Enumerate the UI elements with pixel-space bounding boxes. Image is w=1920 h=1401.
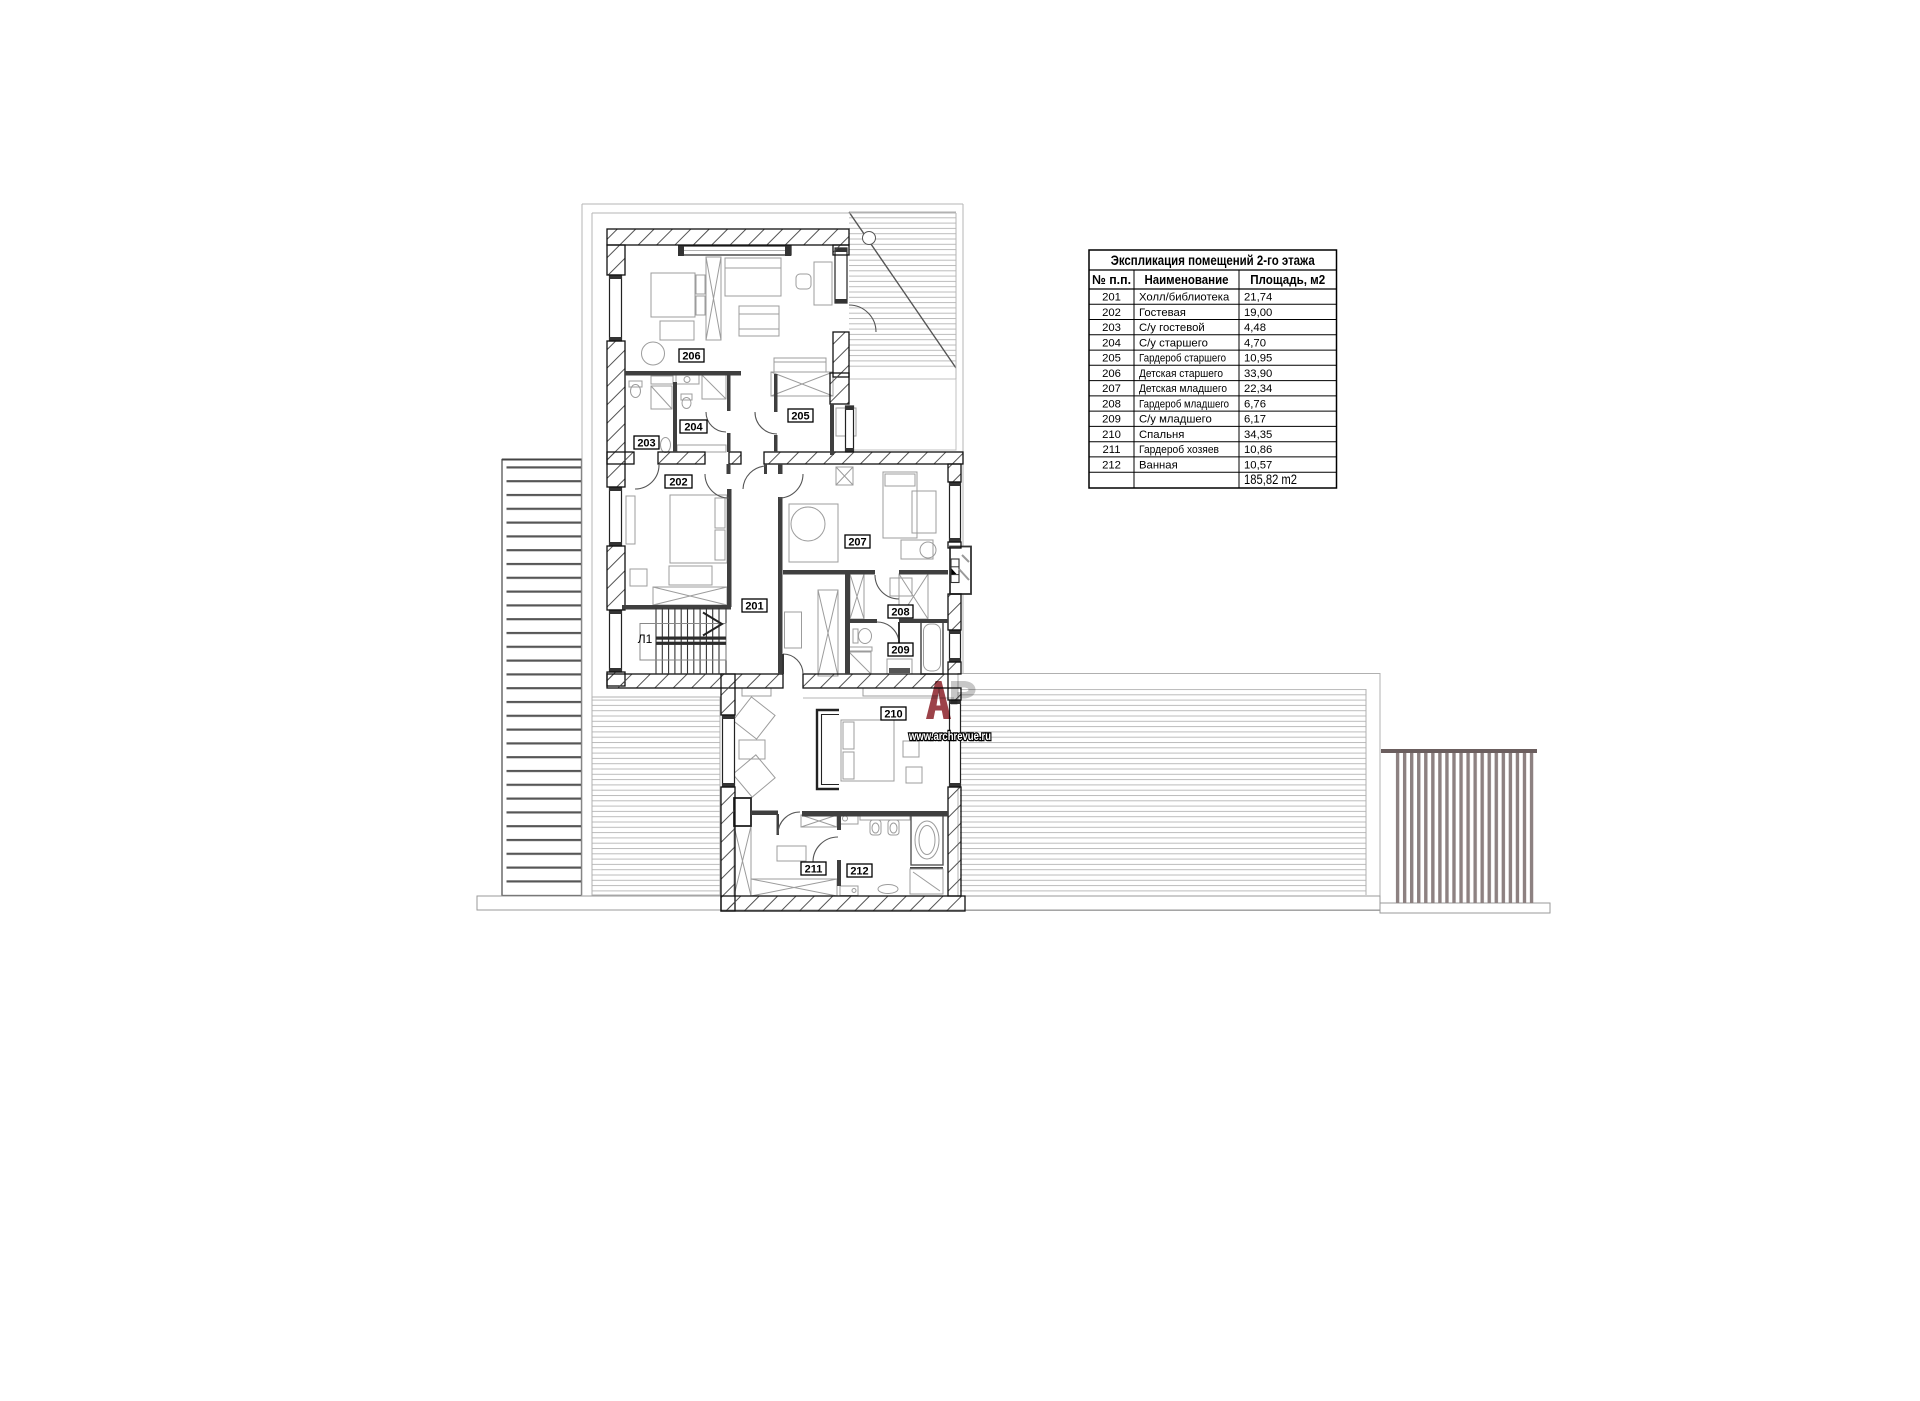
- svg-text:33,90: 33,90: [1244, 368, 1272, 380]
- svg-text:205: 205: [791, 411, 809, 423]
- svg-text:202: 202: [669, 477, 687, 489]
- svg-text:211: 211: [1102, 444, 1120, 456]
- svg-text:203: 203: [637, 438, 655, 450]
- svg-text:21,74: 21,74: [1244, 292, 1272, 304]
- svg-text:208: 208: [891, 607, 909, 619]
- svg-text:202: 202: [1102, 307, 1121, 319]
- svg-text:10,57: 10,57: [1244, 459, 1272, 471]
- svg-text:Ванная: Ванная: [1139, 459, 1178, 471]
- svg-text:6,76: 6,76: [1244, 398, 1266, 410]
- svg-text:Экспликация помещений 2-го эта: Экспликация помещений 2-го этажа: [1111, 252, 1315, 268]
- svg-text:19,00: 19,00: [1244, 307, 1272, 319]
- svg-text:Холл/библиотека: Холл/библиотека: [1139, 292, 1230, 304]
- svg-text:185,82 m2: 185,82 m2: [1244, 472, 1297, 487]
- svg-text:205: 205: [1102, 353, 1121, 365]
- svg-text:207: 207: [1102, 383, 1121, 395]
- svg-text:10,86: 10,86: [1244, 444, 1272, 456]
- svg-text:Детская младшего: Детская младшего: [1139, 383, 1227, 395]
- svg-text:34,35: 34,35: [1244, 429, 1272, 441]
- svg-text:206: 206: [1102, 368, 1121, 380]
- svg-text:С/у младшего: С/у младшего: [1139, 414, 1212, 426]
- svg-text:10,95: 10,95: [1244, 353, 1272, 365]
- svg-text:201: 201: [1102, 292, 1121, 304]
- svg-text:Наименование: Наименование: [1145, 272, 1229, 287]
- svg-text:212: 212: [850, 866, 868, 878]
- svg-text:С/у старшего: С/у старшего: [1139, 337, 1208, 349]
- svg-text:210: 210: [884, 709, 902, 721]
- svg-text:204: 204: [684, 422, 703, 434]
- svg-text:209: 209: [1102, 414, 1121, 426]
- svg-text:204: 204: [1102, 337, 1121, 349]
- svg-text:203: 203: [1102, 322, 1121, 334]
- svg-text:4,70: 4,70: [1244, 337, 1266, 349]
- svg-text:6,17: 6,17: [1244, 414, 1266, 426]
- svg-text:206: 206: [682, 351, 700, 363]
- svg-text:Гардероб старшего: Гардероб старшего: [1139, 353, 1226, 365]
- svg-text:Л1: Л1: [638, 632, 653, 646]
- svg-text:www.archrevue.ru: www.archrevue.ru: [908, 731, 991, 743]
- svg-text:Гардероб хозяев: Гардероб хозяев: [1139, 444, 1219, 456]
- svg-text:211: 211: [805, 864, 823, 876]
- svg-text:201: 201: [745, 601, 763, 613]
- svg-text:Детская старшего: Детская старшего: [1139, 368, 1223, 380]
- svg-text:Спальня: Спальня: [1139, 429, 1184, 441]
- svg-text:Гардероб младшего: Гардероб младшего: [1139, 398, 1229, 410]
- svg-text:Площадь, м2: Площадь, м2: [1250, 272, 1325, 287]
- svg-text:208: 208: [1102, 398, 1121, 410]
- svg-text:210: 210: [1102, 429, 1121, 441]
- svg-text:4,48: 4,48: [1244, 322, 1266, 334]
- svg-text:22,34: 22,34: [1244, 383, 1272, 395]
- svg-text:С/у гостевой: С/у гостевой: [1139, 322, 1205, 334]
- svg-text:Гостевая: Гостевая: [1139, 307, 1186, 319]
- svg-text:212: 212: [1102, 459, 1121, 471]
- svg-text:207: 207: [848, 537, 866, 549]
- svg-text:209: 209: [891, 645, 909, 657]
- svg-text:№ п.п.: № п.п.: [1092, 272, 1131, 287]
